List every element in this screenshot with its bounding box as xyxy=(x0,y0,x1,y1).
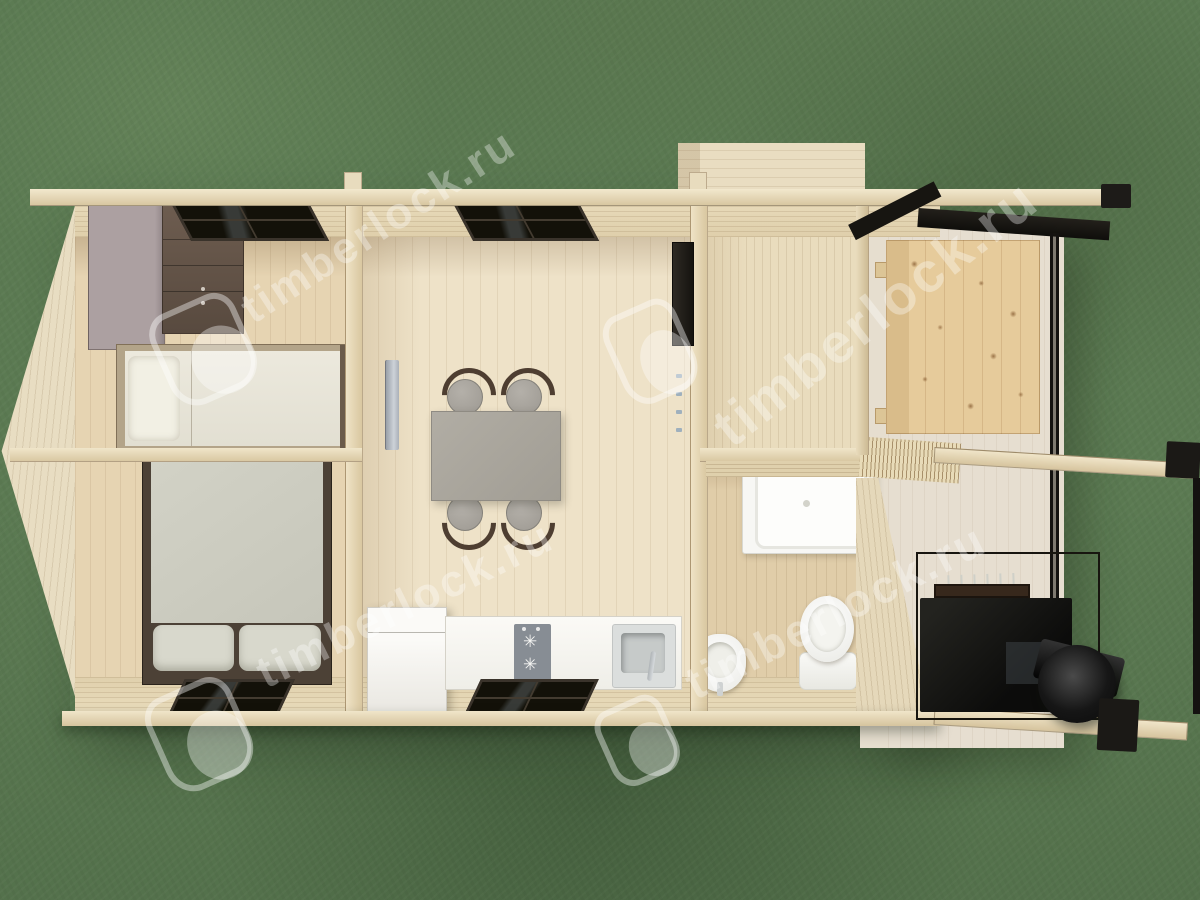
purlin-black-cap xyxy=(1101,184,1131,208)
pergola-side-beam xyxy=(1193,478,1200,714)
burner-icon: ✳ xyxy=(523,656,537,673)
dining-chair xyxy=(503,376,543,416)
dining-table xyxy=(431,411,561,501)
bathroom-wall-face xyxy=(706,461,866,477)
dining-chair xyxy=(444,376,484,416)
floorplan-render: ✳ ✳ xyxy=(0,0,1200,900)
burner-icon: ✳ xyxy=(523,633,537,650)
cooktop: ✳ ✳ xyxy=(514,624,551,682)
pergola-post xyxy=(1165,441,1200,479)
bedroom-divider-wall-beam xyxy=(10,448,362,462)
kitchen-sink xyxy=(612,624,676,688)
drain xyxy=(803,500,810,507)
radiator-panel xyxy=(385,360,399,450)
pergola-post xyxy=(1097,698,1140,752)
double-bed-mattress xyxy=(151,459,323,623)
double-bed-pillow-left xyxy=(153,625,234,671)
